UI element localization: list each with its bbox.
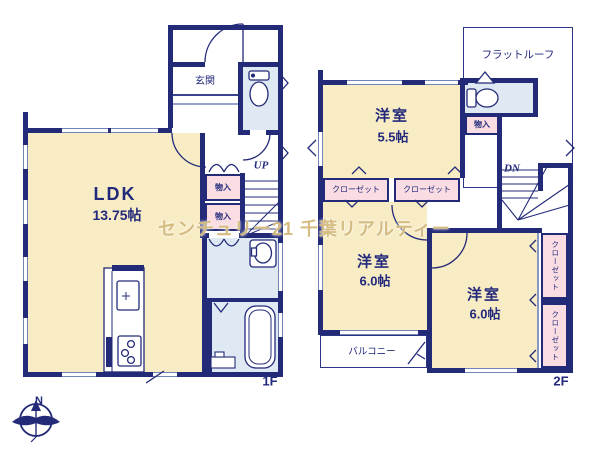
window xyxy=(23,145,28,169)
window xyxy=(318,132,323,166)
ldk-size-label: 13.75帖 xyxy=(92,208,141,222)
wall xyxy=(168,25,173,133)
window xyxy=(153,372,177,377)
wall xyxy=(168,62,205,67)
step-line xyxy=(173,94,238,96)
window xyxy=(340,330,418,335)
wall xyxy=(538,163,543,191)
double-door-storage-upper xyxy=(209,165,239,173)
bedroom-c-name-label: 洋室 xyxy=(467,288,501,303)
stairs-up-label: UP xyxy=(254,161,269,172)
window xyxy=(425,80,458,85)
wall xyxy=(497,117,502,228)
window xyxy=(278,243,283,291)
closet-d-label: クローゼット xyxy=(551,311,559,362)
wall xyxy=(238,62,243,135)
wall xyxy=(460,78,538,83)
closet-c-label: クローゼット xyxy=(551,241,559,292)
room-porch xyxy=(173,30,278,62)
window xyxy=(23,257,28,281)
wall xyxy=(168,25,283,30)
room-washroom xyxy=(207,238,278,298)
ldk-name-label: LDK xyxy=(94,185,137,203)
window xyxy=(465,368,517,373)
step-line xyxy=(173,103,238,105)
closet-door-track xyxy=(537,233,539,368)
door-arc-toilet-1f xyxy=(243,133,270,160)
watermark-text: センチュリー21 千葉リアルティー xyxy=(158,215,458,241)
floor2-label: 2F xyxy=(553,375,568,388)
wall xyxy=(541,299,568,304)
room-ldk xyxy=(28,133,202,372)
room-bathroom xyxy=(212,302,278,372)
window xyxy=(62,372,96,377)
wall xyxy=(568,163,573,373)
room-toilet-2f xyxy=(465,83,533,113)
bedroom-a-name-label: 洋室 xyxy=(375,109,409,124)
wall xyxy=(540,163,573,168)
window xyxy=(23,200,28,224)
window xyxy=(318,245,323,290)
wall xyxy=(243,62,283,67)
wall xyxy=(318,70,323,80)
room-toilet-1f xyxy=(243,67,278,130)
bedroom-a-size-label: 5.5帖 xyxy=(377,131,408,144)
bedroom-c-size-label: 6.0帖 xyxy=(469,308,500,321)
storage-2f-label: 物入 xyxy=(474,121,490,129)
genkan-label: 玄関 xyxy=(195,77,215,87)
window-mullion xyxy=(108,128,111,133)
wall xyxy=(238,130,250,135)
compass-north-label: N xyxy=(35,395,43,407)
window xyxy=(347,80,402,85)
balcony-label: バルコニー xyxy=(348,347,395,357)
compass-icon xyxy=(12,400,60,442)
wall xyxy=(207,298,283,302)
floorplan-canvas: N 玄関 LDK 13.75帖 物入 物入 UP 1F フラットルーフ 洋室 5… xyxy=(0,0,600,450)
closet-b-label: クローゼット xyxy=(403,186,451,194)
wall xyxy=(266,130,283,135)
wall xyxy=(533,83,538,113)
window xyxy=(23,318,28,344)
stairs-down-label: DN xyxy=(504,164,520,175)
wall xyxy=(207,302,212,372)
bedroom-b-name-label: 洋室 xyxy=(357,255,391,270)
window xyxy=(278,313,283,337)
wall xyxy=(427,228,432,373)
closet-a-label: クローゼット xyxy=(332,186,380,194)
storage-1f-upper-label: 物入 xyxy=(215,184,231,192)
bedroom-b-size-label: 6.0帖 xyxy=(359,275,390,288)
floor1-label: 1F xyxy=(262,375,277,388)
wall xyxy=(460,83,465,178)
flat-roof-label: フラットルーフ xyxy=(482,50,555,61)
